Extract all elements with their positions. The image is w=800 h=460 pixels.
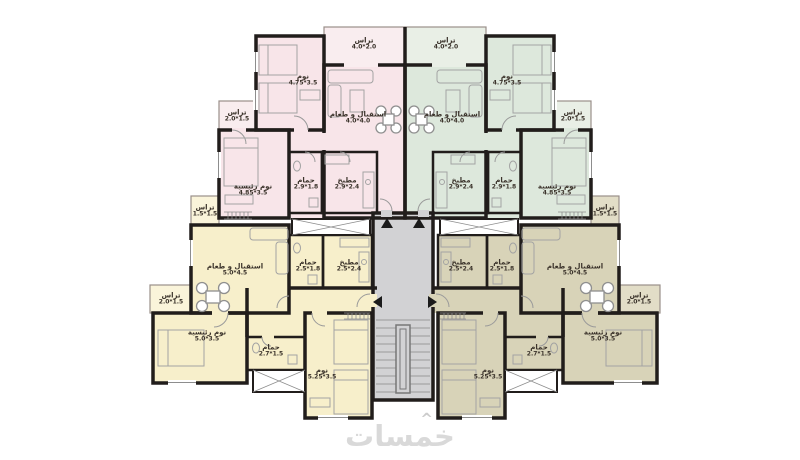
room-label-bathroom: حمام2.9*1.8 (294, 177, 318, 192)
room-label-bedroom: نوم5.25*3.5 (308, 367, 337, 382)
room-label-bathroom: حمام2.7*1.5 (259, 344, 283, 359)
room-label-terrace: تراس1.5*1.5 (193, 204, 217, 219)
room-label-terrace: تراس1.5*1.5 (593, 204, 617, 219)
room-label-master-bedroom: نوم رئيسية4.85*3.5 (234, 183, 272, 198)
room-label-bathroom: حمام2.5*1.8 (490, 259, 514, 274)
room-label-terrace: تراس2.0*1.5 (627, 292, 651, 307)
room-label-master-bedroom: نوم رئيسية4.85*3.5 (538, 183, 576, 198)
room-label-bathroom: حمام2.9*1.8 (492, 177, 516, 192)
room-label-bathroom: حمام2.7*1.5 (527, 344, 551, 359)
room-label-kitchen: مطبخ2.5*2.4 (337, 259, 361, 274)
watermark-logo: ^ خمسات (330, 419, 470, 453)
watermark-text: خمسات (345, 419, 455, 453)
room-label-reception: استقبال و طعام5.0*4.5 (547, 263, 603, 278)
room-label-terrace: تراس2.0*1.5 (159, 292, 183, 307)
room-label-terrace: تراس4.0*2.0 (434, 37, 458, 52)
room-label-reception: استقبال و طعام4.0*4.0 (424, 111, 480, 126)
watermark-caret-icon: ^ (420, 410, 434, 428)
floor-plan: تراس4.0*2.0 نوم4.75*3.5 استقبال و طعام4.… (0, 0, 800, 460)
room-label-terrace: تراس2.0*1.5 (561, 109, 585, 124)
room-label-bathroom: حمام2.5*1.8 (296, 259, 320, 274)
room-label-bedroom: نوم5.25*3.5 (474, 367, 503, 382)
room-label-terrace: تراس4.0*2.0 (352, 37, 376, 52)
room-label-reception: استقبال و طعام4.0*4.0 (330, 111, 386, 126)
room-label-kitchen: مطبخ2.9*2.4 (449, 177, 473, 192)
room-label-terrace: تراس2.0*1.5 (225, 109, 249, 124)
room-label-kitchen: مطبخ2.5*2.4 (449, 259, 473, 274)
room-label-master-bedroom: نوم رئيسية5.0*3.5 (188, 329, 226, 344)
room-label-kitchen: مطبخ2.9*2.4 (335, 177, 359, 192)
room-label-bedroom: نوم4.75*3.5 (493, 73, 522, 88)
room-label-bedroom: نوم4.75*3.5 (289, 73, 318, 88)
room-label-master-bedroom: نوم رئيسية5.0*3.5 (584, 329, 622, 344)
room-label-reception: استقبال و طعام5.0*4.5 (207, 263, 263, 278)
floor-plan-graphics (0, 0, 800, 460)
